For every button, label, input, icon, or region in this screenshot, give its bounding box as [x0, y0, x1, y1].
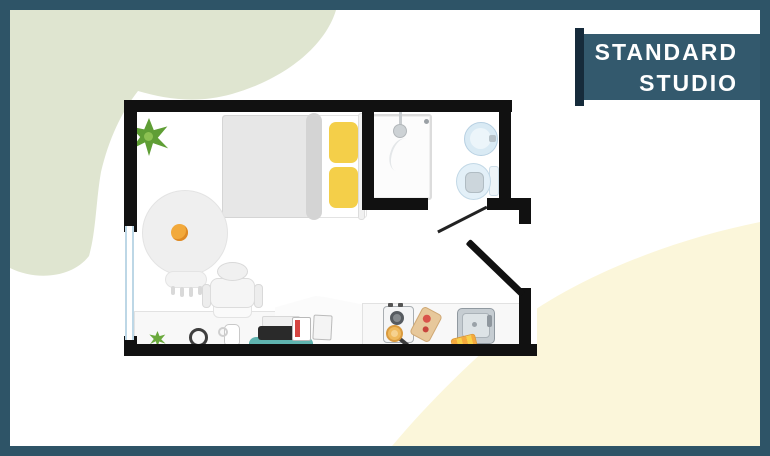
stove-knob: [388, 303, 393, 307]
basin-inner: [470, 128, 491, 149]
banner-line-1: STANDARD: [584, 37, 738, 68]
wall-top: [124, 100, 512, 112]
tomato-icon: [422, 325, 430, 333]
pillow-icon: [329, 167, 358, 208]
chair-foot: [189, 287, 193, 297]
mug-handle: [218, 327, 228, 337]
books-icon: [292, 317, 311, 341]
basin-faucet-icon: [489, 135, 496, 142]
banner-line-2: STUDIO: [584, 68, 738, 99]
wall-bath-left: [362, 112, 374, 210]
chair-foot: [171, 286, 175, 295]
chair-cushion-icon: [171, 224, 188, 241]
banner-shadow: [575, 28, 584, 106]
book-spine: [295, 320, 300, 337]
chair-foot: [180, 287, 184, 297]
toilet-icon: [456, 163, 491, 200]
sink-drain: [472, 322, 477, 327]
frying-pan-icon: [386, 325, 403, 342]
burner-icon: [390, 311, 404, 325]
wall-bottom: [124, 344, 537, 356]
desk-chair-headrest: [217, 262, 248, 281]
desk-chair-icon: [210, 278, 255, 308]
wall-right-lower: [519, 288, 531, 348]
pillow-icon: [329, 122, 358, 163]
wall-entry-stub: [519, 198, 531, 224]
tomato-icon: [421, 313, 432, 324]
books-icon: [312, 315, 332, 341]
shower-control-icon: [424, 119, 429, 124]
plant-center: [144, 132, 153, 141]
pan-inner: [391, 330, 398, 337]
window-icon: [125, 226, 134, 340]
floor-plan-poster: STANDARD STUDIO: [0, 0, 770, 456]
desk-chair-armrest: [254, 284, 263, 308]
washbasin-icon: [464, 122, 498, 156]
toilet-seat: [465, 172, 484, 193]
duvet-icon: [222, 115, 312, 218]
wall-left-upper: [124, 100, 137, 232]
faucet-icon: [487, 315, 492, 327]
stove-knob: [398, 303, 403, 307]
title-banner: STANDARD STUDIO: [584, 34, 760, 100]
wall-right-upper: [499, 100, 511, 210]
duvet-fold-icon: [306, 113, 322, 220]
shower-head-icon: [393, 124, 407, 138]
